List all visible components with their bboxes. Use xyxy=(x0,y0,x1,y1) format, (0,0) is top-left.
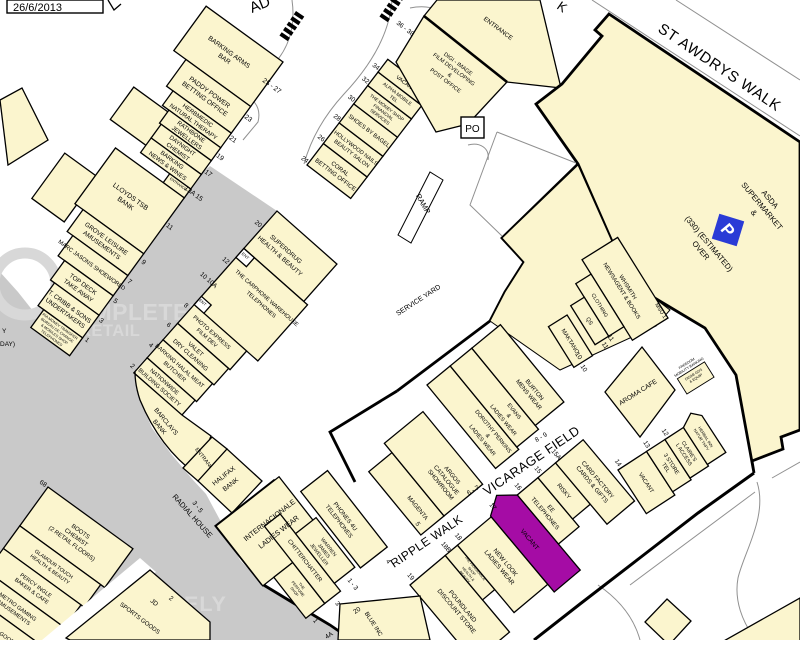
svg-text:26/6/2013: 26/6/2013 xyxy=(13,2,62,14)
svg-text:Y: Y xyxy=(2,328,7,335)
svg-text:PO: PO xyxy=(465,124,480,135)
svg-text:DAY): DAY) xyxy=(0,341,15,348)
